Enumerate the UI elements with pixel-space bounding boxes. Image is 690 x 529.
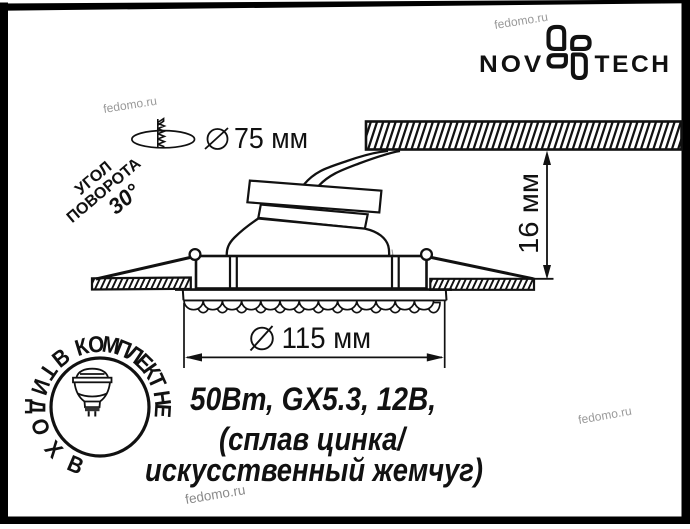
svg-text:Е: Е xyxy=(149,403,176,418)
svg-text:TECH: TECH xyxy=(595,51,672,78)
svg-text:искусственный жемчуг): искусственный жемчуг) xyxy=(145,452,483,488)
svg-text:115 мм: 115 мм xyxy=(282,322,372,355)
svg-text:50Вт, GX5.3, 12В,: 50Вт, GX5.3, 12В, xyxy=(190,381,436,417)
svg-text:NOV: NOV xyxy=(479,51,544,78)
svg-text:Д: Д xyxy=(24,399,50,414)
svg-text:75 мм: 75 мм xyxy=(234,123,308,155)
svg-text:16 мм: 16 мм xyxy=(513,173,544,254)
